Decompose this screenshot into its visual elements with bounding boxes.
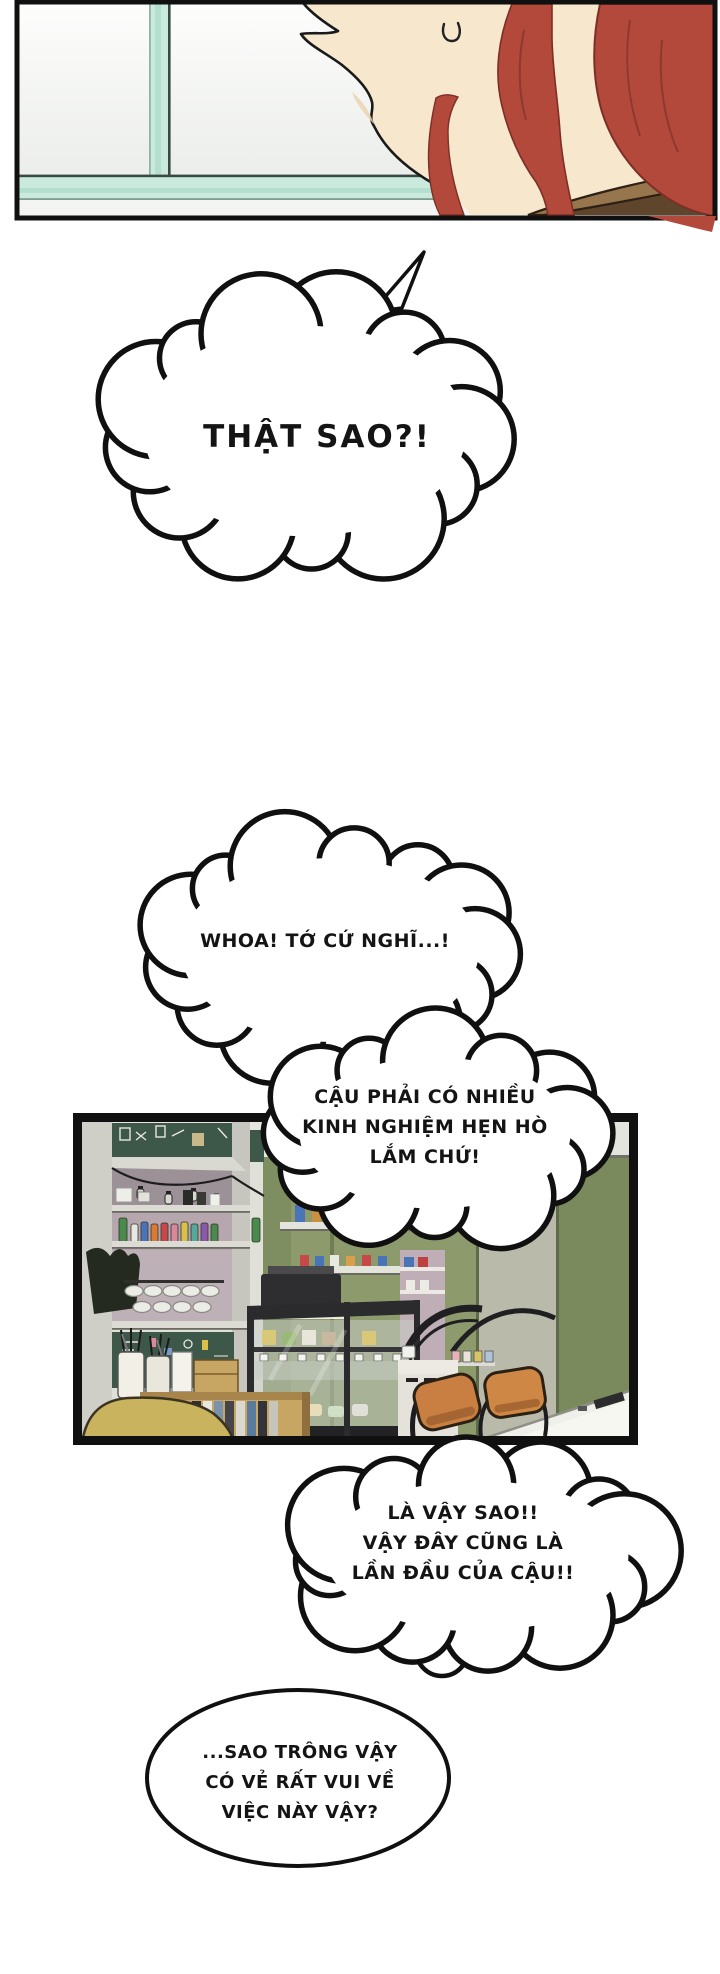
oval-bubble-text: ...SAO TRÔNG VẬY CÓ VẺ RẤT VUI VỀ VIỆC N… bbox=[158, 1738, 442, 1828]
speech-bubble-4-text: LÀ VẬY SAO!! VẬY ĐÂY CŨNG LÀ LẦN ĐẦU CỦA… bbox=[322, 1498, 604, 1588]
speech-bubble-3-text: CẬU PHẢI CÓ NHIỀU KINH NGHIỆM HẸN HÒ LẮM… bbox=[284, 1082, 566, 1172]
bubble-4-line: VẬY ĐÂY CŨNG LÀ bbox=[363, 1528, 564, 1558]
panel-window-closeup bbox=[17, 2, 716, 232]
bubble-1-line: THẬT SAO?! bbox=[203, 422, 431, 452]
bubble-5-line: CÓ VẺ RẤT VUI VỀ bbox=[205, 1768, 394, 1798]
bubble-5-line: VIỆC NÀY VẬY? bbox=[222, 1798, 379, 1828]
speech-bubbles bbox=[98, 252, 681, 1866]
comic-art bbox=[0, 0, 720, 1974]
hair-overflow bbox=[648, 216, 716, 232]
comic-page: THẬT SAO?! WHOA! TỚ CỨ NGHĨ...! CẬU PHẢI… bbox=[0, 0, 720, 1974]
speech-bubble-2-text: WHOA! TỚ CỨ NGHĨ...! bbox=[160, 915, 490, 967]
bubble-4-line: LẦN ĐẦU CỦA CẬU!! bbox=[352, 1558, 575, 1588]
bubble-3-line: CẬU PHẢI CÓ NHIỀU bbox=[314, 1082, 535, 1112]
bubble-5-line: ...SAO TRÔNG VẬY bbox=[202, 1738, 397, 1768]
orange-chair-2 bbox=[483, 1366, 547, 1420]
milk-carton bbox=[172, 1352, 192, 1392]
bubble-4-line: LÀ VẬY SAO!! bbox=[387, 1498, 538, 1528]
speech-bubble-1-text: THẬT SAO?! bbox=[127, 402, 507, 472]
white-mug bbox=[402, 1346, 415, 1358]
bubble-3-line: LẮM CHỨ! bbox=[370, 1142, 481, 1172]
bubble-2-line: WHOA! TỚ CỨ NGHĨ...! bbox=[200, 926, 450, 956]
left-shelf-unit bbox=[82, 1122, 264, 1437]
bubble-3-line: KINH NGHIỆM HẸN HÒ bbox=[302, 1112, 548, 1142]
